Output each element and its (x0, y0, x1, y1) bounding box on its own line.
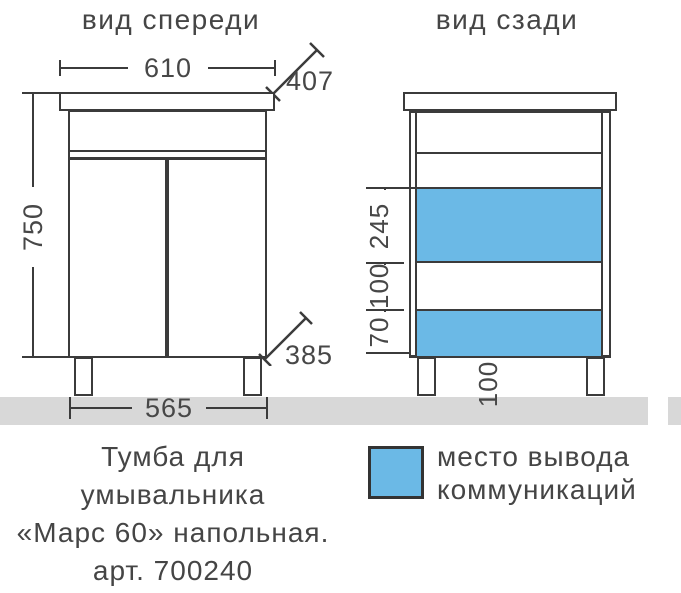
dim-750-tick-top (22, 92, 59, 94)
dim-565-tick-left (69, 397, 71, 419)
back-leg-left (417, 357, 436, 396)
dim-70-label: 70 (364, 312, 394, 352)
dim-565-tick-right (266, 397, 268, 419)
technical-drawing: вид спереди 610 407 750 565 385 вид сзад… (0, 0, 681, 593)
legend-label-line1: место вывода (437, 441, 630, 473)
floor-strip-right (668, 397, 681, 425)
front-view-title: вид спереди (60, 4, 282, 36)
dim-100-label: 100 (364, 265, 394, 309)
caption-line-2: умывальника (0, 476, 346, 514)
dim-565-line-right (206, 407, 268, 409)
dim-750-tick-bottom (22, 356, 68, 358)
back-leg-right (586, 357, 605, 396)
dim-leg-height-label: 100 (473, 349, 503, 419)
floor-strip (0, 397, 648, 425)
dim-385-label: 385 (285, 340, 333, 370)
legend-swatch (368, 446, 424, 499)
back-dim-tick-4 (366, 352, 409, 354)
dim-245-label: 245 (364, 190, 394, 262)
back-view-title: вид сзади (397, 4, 617, 36)
back-side-wall-right (601, 111, 603, 358)
back-countertop (403, 92, 617, 111)
product-caption: Тумба для умывальника «Марс 60» напольна… (0, 438, 346, 590)
dim-565-line-left (70, 407, 132, 409)
front-countertop (59, 92, 275, 111)
caption-line-1: Тумба для (0, 438, 346, 476)
back-top-rail-line (417, 152, 601, 154)
caption-line-4: арт. 700240 (0, 552, 346, 590)
front-leg-left (74, 357, 93, 396)
front-door-divider (165, 158, 169, 357)
caption-line-3: «Марс 60» напольная. (0, 514, 346, 552)
dim-407-label: 407 (286, 66, 334, 96)
legend-label-line2: коммуникаций (437, 474, 637, 506)
front-apron-line-upper (68, 150, 267, 152)
back-dim-tick-1 (366, 187, 417, 189)
dim-565-label: 565 (133, 393, 205, 423)
communication-zone-upper (417, 187, 601, 263)
dim-610-tick-left (59, 60, 61, 76)
communication-zone-lower (417, 309, 601, 356)
dim-610-label: 610 (128, 53, 208, 83)
back-dim-tick-3 (366, 309, 404, 311)
dim-750-label: 750 (18, 187, 48, 267)
